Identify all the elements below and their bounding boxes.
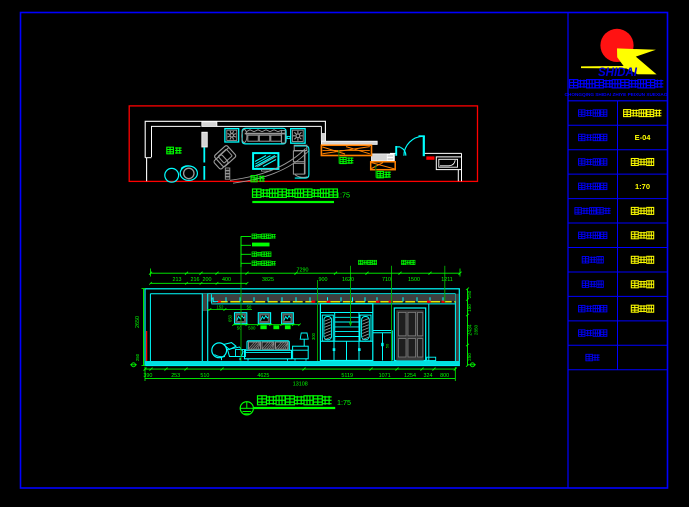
svg-text:2850: 2850 <box>474 324 479 335</box>
svg-text:250: 250 <box>467 290 472 298</box>
svg-text:2650: 2650 <box>135 316 141 328</box>
svg-text:150: 150 <box>467 304 472 312</box>
svg-text:1:75: 1:75 <box>337 398 351 407</box>
svg-text:3825: 3825 <box>262 277 274 283</box>
svg-text:1620: 1620 <box>342 277 354 283</box>
svg-text:400: 400 <box>222 277 231 283</box>
svg-text:1:70: 1:70 <box>635 182 650 191</box>
svg-text:216: 216 <box>191 277 200 283</box>
svg-text:50: 50 <box>247 304 252 309</box>
svg-text:152: 152 <box>217 304 225 309</box>
svg-text:1500: 1500 <box>408 277 420 283</box>
svg-text:200: 200 <box>203 277 212 283</box>
svg-text:900: 900 <box>319 277 328 283</box>
svg-text:1:75: 1:75 <box>336 191 350 200</box>
svg-text:E-04: E-04 <box>635 133 652 142</box>
svg-text:650: 650 <box>228 314 233 322</box>
svg-text:13108: 13108 <box>293 381 308 387</box>
svg-text:1211: 1211 <box>441 277 453 283</box>
svg-text:7290: 7290 <box>297 267 309 273</box>
svg-text:SHIDAI: SHIDAI <box>598 67 638 79</box>
svg-text:500: 500 <box>248 326 256 331</box>
svg-text:213: 213 <box>173 277 182 283</box>
svg-text:710: 710 <box>382 277 391 283</box>
svg-text:50: 50 <box>385 343 390 348</box>
svg-text:250: 250 <box>467 353 472 361</box>
svg-text:CHONGQING SHIDAI ZHIYE PEIXUN: CHONGQING SHIDAI ZHIYE PEIXUN XUEXIAO <box>565 92 668 97</box>
svg-text:300: 300 <box>311 332 316 340</box>
svg-text:2434: 2434 <box>468 324 474 335</box>
svg-text:250: 250 <box>135 353 140 361</box>
